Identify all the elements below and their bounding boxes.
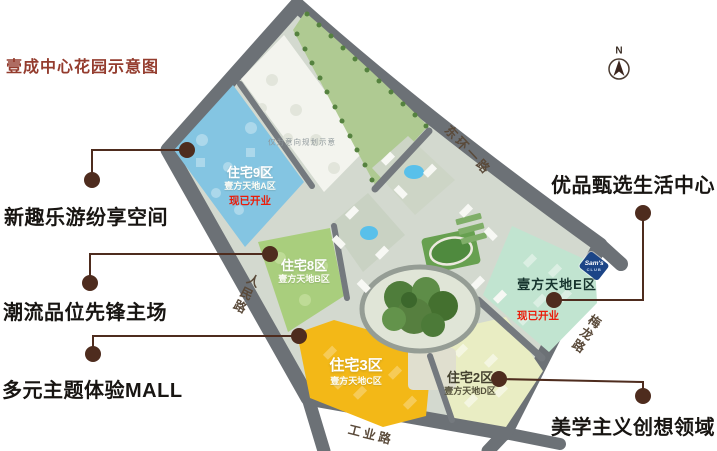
- callout-fun-space: 新趣乐游纷享空间: [4, 201, 168, 230]
- zone-c3-label: 住宅3区 壹方天地C区: [329, 357, 382, 387]
- figure-title: 壹成中心花园示意图: [6, 53, 159, 77]
- callout-theme-mall: 多元主题体验MALL: [2, 374, 183, 403]
- zone-e-status-label: 现已开业: [517, 308, 559, 323]
- site-plan-figure: 壹成中心花园示意图 N 新趣乐游纷享空间 潮流品位先锋主场 多元主题体验MALL…: [0, 0, 717, 451]
- callout-aesthetic-field: 美学主义创想领域: [551, 411, 715, 440]
- zone-c3-name: 住宅3区: [329, 357, 382, 376]
- zone-a9-label: 住宅9区 壹方天地A区 现已开业: [224, 165, 276, 208]
- sams-sub: CLUB: [585, 267, 604, 271]
- zone-c3-subtitle: 壹方天地C区: [329, 376, 382, 387]
- north-arrow-icon: [609, 59, 629, 79]
- zone-e-name: 壹方天地E区: [517, 277, 597, 293]
- callout-trend-arena: 潮流品位先锋主场: [3, 296, 167, 325]
- zone-b8-subtitle: 壹方天地B区: [278, 274, 330, 285]
- zone-b8-label: 住宅8区 壹方天地B区: [278, 258, 330, 286]
- callout-life-center: 优品甄选生活中心: [551, 169, 715, 198]
- sams-club-text: Sam's CLUB: [585, 261, 604, 272]
- planning-disclaimer: 仅为意向规划示意: [268, 137, 336, 148]
- zone-e-label: 壹方天地E区: [517, 277, 597, 293]
- zone-a9-name: 住宅9区: [224, 165, 276, 181]
- central-park: [362, 267, 478, 351]
- zone-b8-name: 住宅8区: [278, 258, 330, 274]
- compass-label: N: [615, 46, 622, 57]
- zone-e-status: 现已开业: [517, 310, 559, 323]
- zone-d2-name: 住宅2区: [444, 370, 496, 386]
- zone-a9-subtitle: 壹方天地A区: [224, 181, 276, 192]
- zone-d2-subtitle: 壹方天地D区: [444, 386, 496, 397]
- zone-a9-status: 现已开业: [224, 195, 276, 208]
- zone-d2-label: 住宅2区 壹方天地D区: [444, 370, 496, 398]
